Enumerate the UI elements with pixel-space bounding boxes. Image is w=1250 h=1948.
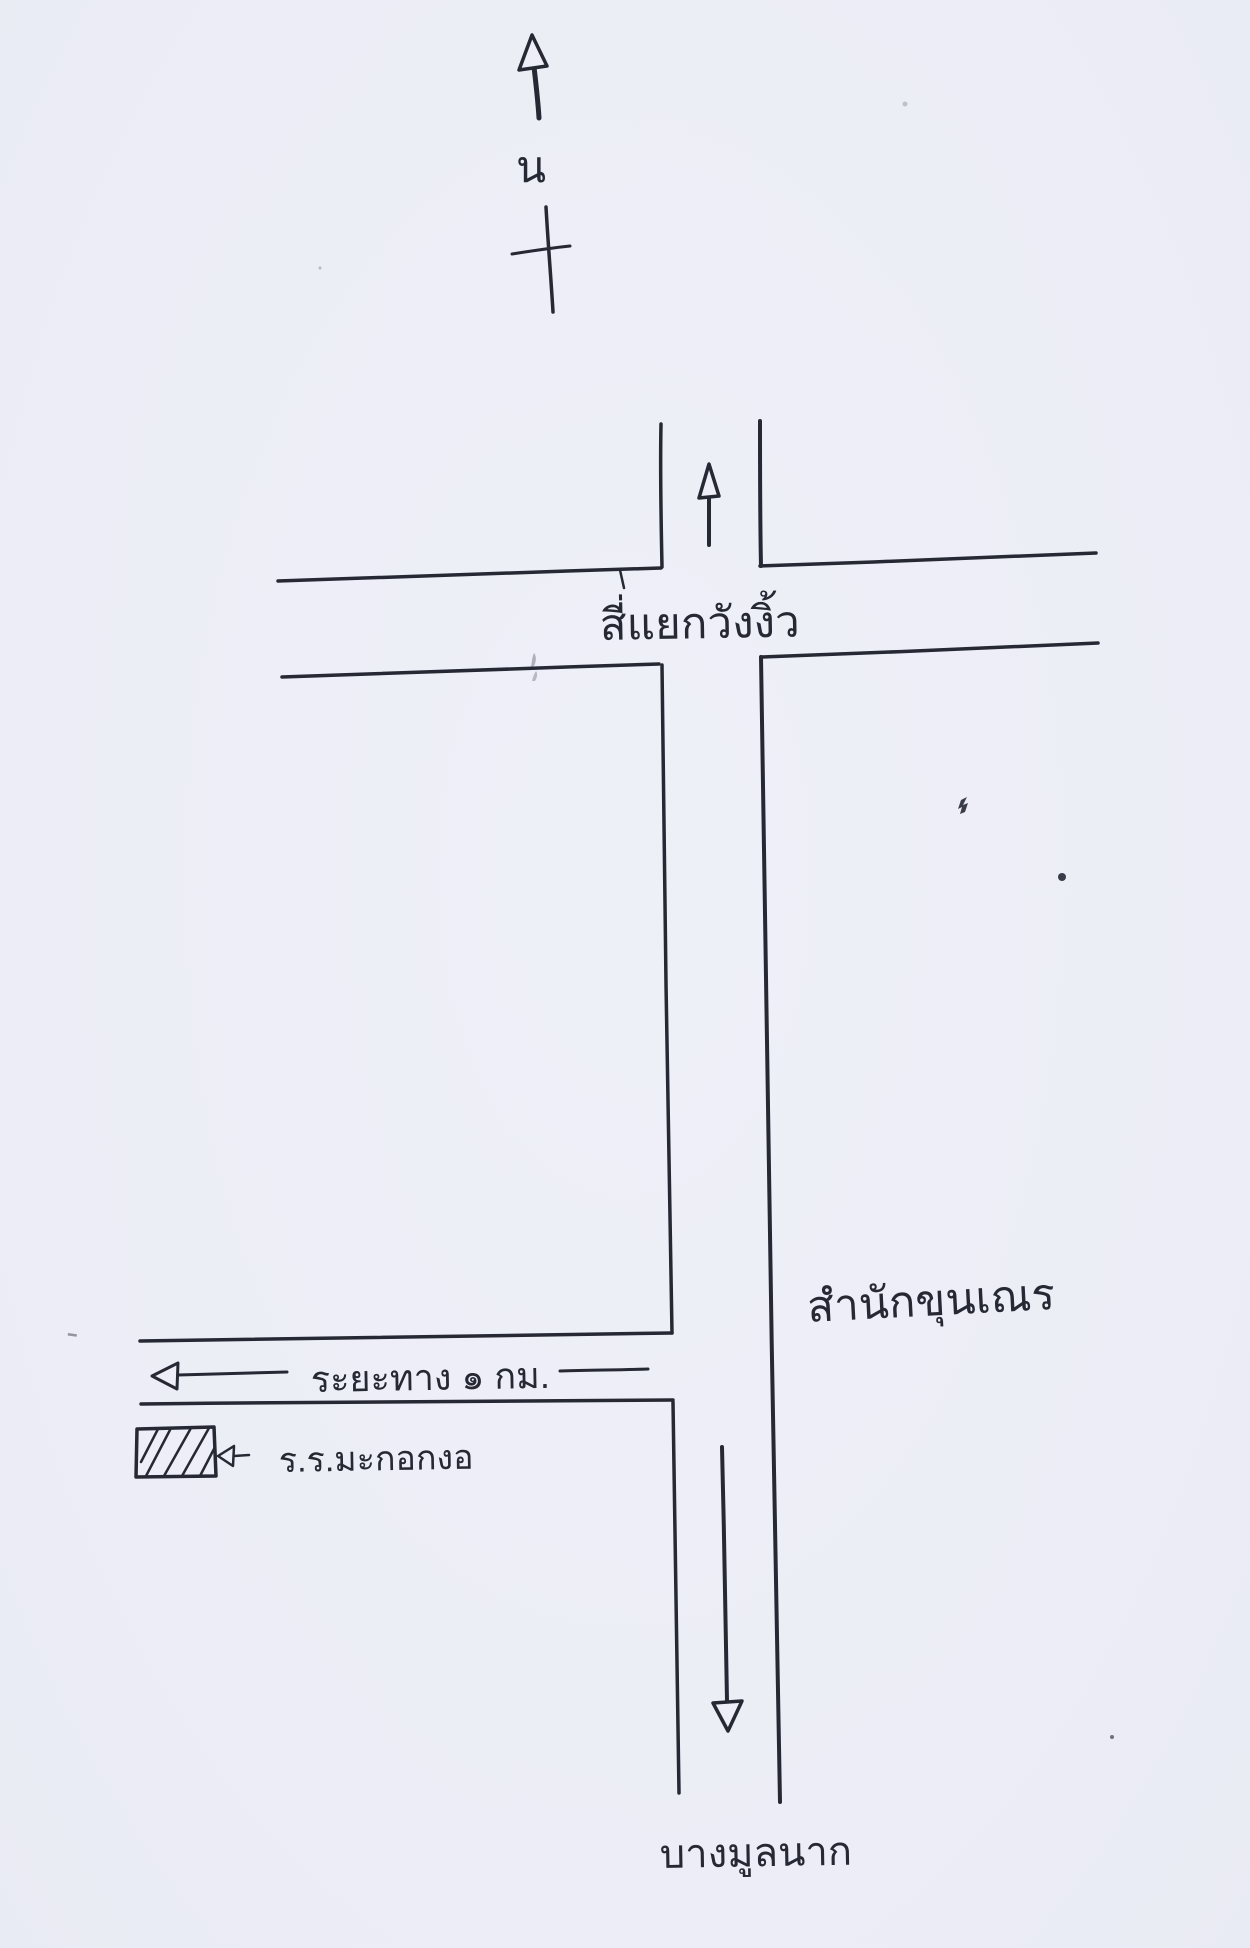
- north-arrow-icon: [519, 35, 547, 118]
- intersection-label: สี่แยกวังงิ้ว: [599, 590, 800, 650]
- bottom-destination-label: บางมูลนาก: [659, 1830, 852, 1878]
- place-right-label: สำนักขุนเณร: [806, 1270, 1056, 1334]
- down-direction-arrow-icon: [713, 1447, 742, 1731]
- school-label: ร.ร.มะกอกงอ: [278, 1439, 473, 1480]
- school-pointer-arrow-icon: [218, 1446, 249, 1466]
- school-building-icon: [136, 1427, 216, 1477]
- ink-speck: [68, 102, 1114, 1740]
- cross-mark-icon: [512, 207, 570, 312]
- north-label: น: [516, 143, 546, 192]
- sketch-map-canvas: น ระยะทาง ๑ กม.: [0, 0, 1250, 1948]
- up-direction-arrow-icon: [699, 464, 719, 545]
- road-south-main: [662, 657, 780, 1802]
- distance-label: ระยะทาง ๑ กม.: [310, 1355, 550, 1400]
- road-east-arm: [760, 553, 1098, 657]
